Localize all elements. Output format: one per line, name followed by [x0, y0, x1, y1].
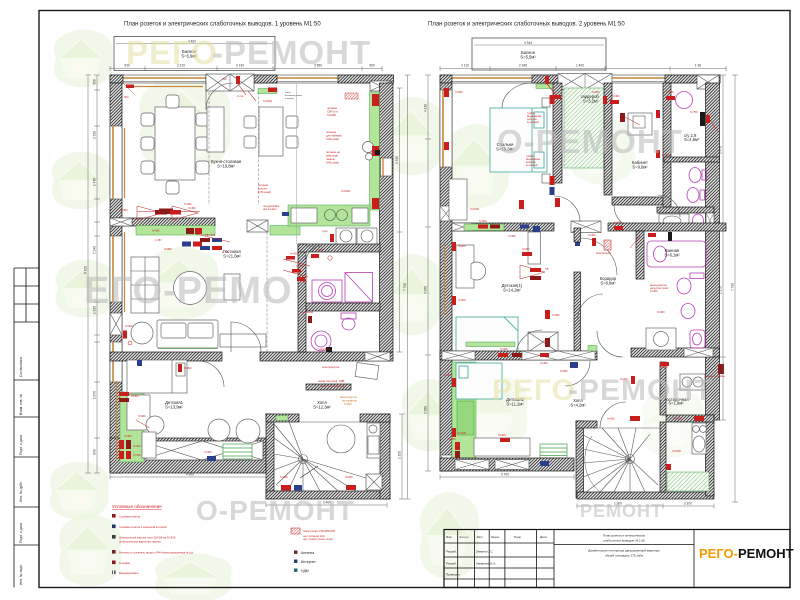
svg-text:h=300: h=300	[133, 444, 141, 448]
svg-text:h=300: h=300	[458, 298, 466, 302]
svg-text:Телефон: Телефон	[119, 561, 131, 565]
svg-text:h=300: h=300	[184, 366, 192, 370]
svg-text:S=12,3м²: S=12,3м²	[313, 405, 331, 410]
svg-text:Подп.: Подп.	[514, 535, 522, 539]
svg-text:шкаф хоз. инвентаря: шкаф хоз. инвентаря	[320, 384, 347, 388]
svg-text:700: 700	[222, 77, 227, 81]
svg-text:h=В шкаф: h=В шкаф	[258, 190, 271, 194]
svg-text:РЕГО: РЕГО	[126, 34, 218, 71]
svg-text:на шкафчик: на шкафчик	[342, 399, 358, 403]
svg-text:7 790: 7 790	[403, 283, 407, 291]
svg-text:Согласовано: Согласовано	[19, 356, 23, 377]
svg-text:h=300: h=300	[508, 234, 516, 238]
svg-text:h=2000: h=2000	[263, 99, 273, 103]
svg-text:РЕМОНТ: РЕМОНТ	[580, 501, 663, 521]
svg-text:2 330: 2 330	[395, 156, 399, 164]
svg-text:h=300: h=300	[120, 208, 128, 212]
svg-text:h=300: h=300	[184, 202, 192, 206]
svg-text:слаботочных выводов. М 1:50: слаботочных выводов. М 1:50	[603, 539, 645, 543]
svg-text:План розеток и электрических с: План розеток и электрических слаботочных…	[428, 22, 625, 28]
svg-text:2 240: 2 240	[93, 246, 97, 254]
svg-text:1 96: 1 96	[695, 64, 701, 68]
svg-text:ТВ: ТВ	[545, 267, 549, 271]
svg-text:h=1000: h=1000	[327, 113, 337, 117]
svg-text:2 110: 2 110	[461, 64, 469, 68]
svg-text:3 950: 3 950	[424, 286, 428, 294]
svg-text:S=6,8м²: S=6,8м²	[600, 281, 616, 286]
svg-text:640: 640	[93, 449, 97, 455]
svg-text:Выключатели: Выключатели	[340, 395, 357, 399]
svg-text:h=900: h=900	[296, 264, 304, 268]
svg-text:Инв. № дубл.: Инв. № дубл.	[19, 481, 23, 502]
svg-text:h=300: h=300	[125, 324, 133, 328]
svg-text:шкаф спортинв. ОДВ: шкаф спортинв. ОДВ	[318, 379, 345, 383]
svg-text:Электрощит 240х380х150: Электрощит 240х380х150	[303, 529, 336, 533]
svg-text:S=4,6м²: S=4,6м²	[684, 137, 700, 142]
svg-text:2 470: 2 470	[719, 146, 723, 154]
svg-text:Разраб.: Разраб.	[446, 550, 457, 554]
svg-text:S=6,1м²: S=6,1м²	[664, 253, 680, 258]
svg-text:-РЕМОНТ: -РЕМОНТ	[212, 34, 371, 71]
svg-text:РЕГО: РЕГО	[492, 374, 576, 407]
svg-text:h=750: h=750	[448, 437, 456, 441]
svg-text:S=3,2м²: S=3,2м²	[583, 99, 599, 104]
svg-text:S=19,8м²: S=19,8м²	[217, 164, 235, 169]
svg-text:h=300: h=300	[138, 414, 146, 418]
svg-text:h=300: h=300	[152, 229, 160, 233]
svg-text:h=300: h=300	[657, 310, 665, 314]
svg-text:300: 300	[93, 79, 97, 85]
svg-text:h=300: h=300	[560, 369, 568, 373]
svg-text:h=900: h=900	[614, 221, 622, 225]
svg-text:h=300: h=300	[280, 475, 288, 479]
svg-text:Дизайн-проект интерьера двухур: Дизайн-проект интерьера двухуровневой кв…	[588, 549, 659, 553]
svg-text:h=300: h=300	[124, 434, 132, 438]
svg-text:2 отв: 2 отв	[237, 94, 244, 98]
svg-text:h=300: h=300	[522, 247, 530, 251]
svg-text:полотенце: полотенце	[300, 311, 314, 314]
svg-text:Видеодомофон: Видеодомофон	[119, 571, 139, 575]
svg-text:2 170: 2 170	[719, 286, 723, 294]
svg-text:СВЧ и тп: СВЧ и тп	[327, 110, 339, 114]
svg-text:h=1000: h=1000	[341, 189, 351, 193]
svg-text:№док.: №док.	[491, 535, 500, 539]
svg-text:h=1030: h=1030	[470, 207, 480, 211]
svg-text:h=300: h=300	[607, 417, 615, 421]
svg-text:7 790: 7 790	[731, 283, 735, 291]
svg-text:(электрическая варочная панель: (электрическая варочная панель)	[119, 540, 161, 544]
svg-text:h=300: h=300	[131, 394, 139, 398]
svg-text:h=750: h=750	[133, 453, 141, 457]
svg-text:Силовая розетка с защитной што: Силовая розетка с защитной шторкой	[119, 525, 167, 529]
svg-text:н-обл: н-обл	[285, 92, 291, 94]
svg-text:стир: стир	[322, 230, 328, 233]
svg-text:для чайника: для чайника	[326, 134, 342, 138]
svg-text:Дата: Дата	[540, 535, 547, 539]
svg-text:h=300: h=300	[479, 219, 487, 223]
svg-text:h=300: h=300	[588, 233, 596, 237]
svg-text:низ 1к фил: низ 1к фил	[263, 207, 277, 211]
svg-text:h=В шкаф: h=В шкаф	[326, 161, 339, 165]
svg-text:4 600: 4 600	[186, 473, 194, 477]
svg-text:О-РЕМОНТ: О-РЕМОНТ	[497, 123, 683, 160]
svg-text:и перекл.: и перекл.	[285, 98, 295, 100]
svg-text:500: 500	[124, 95, 129, 99]
svg-text:h=300: h=300	[592, 90, 600, 94]
svg-text:4 343: 4 343	[524, 41, 532, 45]
svg-text:h=300: h=300	[345, 475, 353, 479]
svg-text:Силовая розетка: Силовая розетка	[119, 515, 141, 519]
svg-text:h=1300: h=1300	[457, 431, 467, 435]
svg-text:Антенна: Антенна	[301, 551, 314, 555]
svg-text:h=400: h=400	[188, 206, 196, 210]
svg-text:h=900: h=900	[552, 313, 560, 317]
svg-text:1 357: 1 357	[155, 238, 162, 242]
svg-text:Инв. № подл.: Инв. № подл.	[19, 564, 23, 585]
svg-text:1 700: 1 700	[300, 280, 307, 284]
svg-text:Зимина С.С.: Зимина С.С.	[476, 550, 494, 554]
svg-text:Лист: Лист	[477, 535, 484, 539]
svg-text:О-РЕМОНТ: О-РЕМОНТ	[196, 495, 355, 526]
svg-text:h=300: h=300	[290, 252, 298, 256]
svg-text:Зимакова Е.А.: Зимакова Е.А.	[476, 562, 496, 566]
svg-text:S=13,9м²: S=13,9м²	[165, 405, 183, 410]
svg-text:5 700: 5 700	[501, 473, 509, 477]
svg-text:Штепсельный разъем типа 32А/3Ф: Штепсельный разъем типа 32А/3Ф на 32-63А	[119, 536, 176, 540]
svg-text:Разраб.: Разраб.	[446, 562, 457, 566]
svg-text:электрощиток: электрощиток	[322, 366, 340, 369]
svg-text:2 290: 2 290	[93, 131, 97, 139]
svg-text:1 870: 1 870	[93, 391, 97, 399]
svg-text:1 700: 1 700	[222, 250, 229, 254]
svg-text:Интернет: Интернет	[301, 560, 316, 564]
svg-text:1 400: 1 400	[576, 64, 584, 68]
svg-text:зу ночник: зу ночник	[526, 164, 539, 167]
svg-text:План розеток и электрических с: План розеток и электрических слаботочных…	[124, 22, 321, 28]
svg-text:h=300: h=300	[612, 94, 620, 98]
svg-text:План розеток и электрических: План розеток и электрических	[603, 534, 646, 538]
svg-text:h=950: h=950	[164, 247, 172, 251]
svg-text:h=900: h=900	[316, 248, 324, 252]
svg-text:S=21,6м²: S=21,6м²	[223, 254, 241, 259]
svg-text:вытяжная рампа: вытяжная рампа	[285, 95, 303, 97]
svg-text:Подп. и дата: Подп. и дата	[19, 523, 23, 543]
svg-text:Кол.уч: Кол.уч	[460, 535, 469, 539]
svg-text:S=14,2м²: S=14,2м²	[503, 288, 521, 293]
svg-text:S=9,6м²: S=9,6м²	[632, 165, 648, 170]
svg-text:h=400: h=400	[650, 289, 658, 293]
svg-text:h=300: h=300	[444, 373, 452, 377]
svg-text:h=900: h=900	[458, 244, 466, 248]
svg-text:Розетка со степенью защиты IP4: Розетка со степенью защиты IP44 влагозащ…	[119, 551, 193, 555]
svg-text:h=В шкаф: h=В шкаф	[326, 137, 339, 141]
svg-text:h=300: h=300	[500, 347, 508, 351]
svg-text:h=1000: h=1000	[673, 417, 683, 421]
svg-text:Изм: Изм	[446, 535, 452, 539]
svg-text:h=900: h=900	[660, 365, 668, 369]
svg-text:4 130: 4 130	[424, 104, 428, 112]
svg-text:h=600: h=600	[344, 402, 352, 406]
svg-text:электрощит: электрощит	[596, 252, 612, 255]
svg-text:-РЕМОНТ: -РЕМОНТ	[568, 374, 713, 407]
svg-text:2 100: 2 100	[684, 502, 692, 506]
svg-text:h=1000: h=1000	[672, 449, 682, 453]
svg-text:h=300: h=300	[204, 450, 212, 454]
svg-text:щит слаботочных сетей: щит слаботочных сетей	[303, 537, 333, 541]
svg-text:1 200: 1 200	[398, 451, 402, 459]
svg-text:3 260: 3 260	[424, 406, 428, 414]
svg-text:общей площадью 175,1м/м: общей площадью 175,1м/м	[605, 554, 643, 558]
svg-text:ЕГО-РЕМО: ЕГО-РЕМО	[84, 270, 293, 312]
svg-text:h=300: h=300	[455, 90, 463, 94]
svg-text:1 436: 1 436	[93, 178, 97, 186]
svg-text:h=300: h=300	[540, 361, 548, 365]
svg-text:Условные обозначения: Условные обозначения	[112, 504, 162, 509]
svg-text:Подп. и дата: Подп. и дата	[19, 435, 23, 455]
svg-text:Взам. инв. №: Взам. инв. №	[19, 394, 23, 415]
svg-text:ТВ 1300: ТВ 1300	[205, 233, 216, 237]
svg-text:2 345: 2 345	[519, 64, 527, 68]
svg-text:Проверил: Проверил	[446, 573, 460, 577]
svg-text:h=300: h=300	[498, 433, 506, 437]
svg-text:h=900: h=900	[666, 90, 674, 94]
svg-text:гидробокс: гидробокс	[318, 347, 331, 351]
svg-text:РЕГО-РЕМОНТ: РЕГО-РЕМОНТ	[699, 546, 794, 561]
svg-text:НДМ: НДМ	[301, 569, 309, 573]
svg-text:S=5,5м²: S=5,5м²	[520, 55, 536, 60]
svg-text:h=750: h=750	[690, 110, 698, 114]
